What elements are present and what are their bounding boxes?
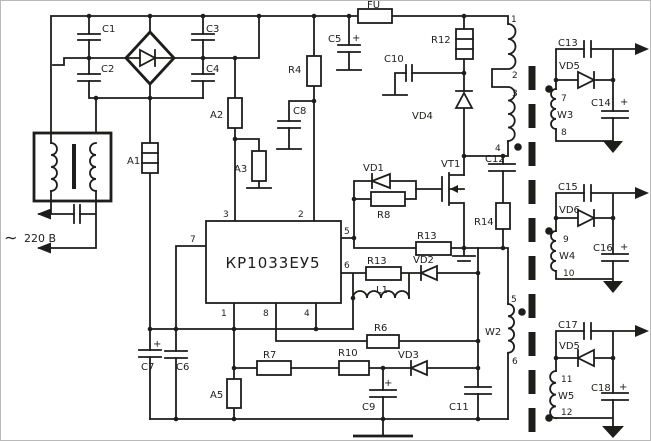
label-r8: R8 (377, 210, 390, 221)
label-c13: C13 (558, 38, 578, 49)
diode-vd2-icon (421, 266, 437, 280)
label-c5-plus: + (352, 33, 360, 44)
label-c18-plus: + (619, 382, 627, 393)
label-vd1: VD1 (363, 163, 384, 174)
w3-winding-icon (551, 89, 556, 129)
w5-winding-icon (550, 371, 556, 418)
label-tr-pin3: 3 (512, 89, 518, 99)
label-mains-voltage: 220 В (24, 232, 56, 245)
fuse-icon (358, 9, 392, 23)
label-c10: C10 (384, 54, 404, 65)
label-tr-pin4: 4 (495, 144, 501, 154)
label-c3: C3 (206, 24, 219, 35)
label-vd5: VD5 (559, 61, 580, 72)
label-c15: C15 (558, 182, 578, 193)
label-vd3: VD3 (398, 350, 419, 361)
w4-winding-icon (551, 231, 556, 271)
label-ic-pin3: 3 (223, 210, 229, 220)
mains-arrow-icon (37, 209, 51, 254)
output-arrow-icons (635, 43, 649, 337)
label-w2: W2 (485, 327, 501, 338)
label-fu: FU (367, 1, 380, 11)
label-tr-pin8: 8 (561, 128, 567, 138)
label-c16-plus: + (620, 242, 628, 253)
diode-vd5-icon (578, 72, 594, 88)
label-c12: C12 (485, 154, 505, 165)
label-c6: C6 (176, 362, 189, 373)
label-c11: C11 (449, 402, 469, 413)
label-tr-pin10: 10 (563, 269, 575, 279)
diode-vd6-icon (578, 210, 594, 226)
x-capacitor-icon (74, 205, 80, 223)
label-ic-pin4: 4 (304, 309, 310, 319)
label-c7-plus: + (153, 339, 161, 350)
label-vt1: VT1 (441, 159, 460, 170)
label-ic-pin7: 7 (190, 235, 196, 245)
label-r12: R12 (431, 35, 451, 46)
label-vd6: VD6 (559, 205, 580, 216)
mosfet-vt1-arrow-icon (450, 185, 458, 193)
label-c7: C7 (141, 362, 154, 373)
label-r10: R10 (338, 348, 358, 359)
label-vd2: VD2 (413, 255, 434, 266)
label-a5: A5 (210, 390, 223, 401)
schematic-sheet: C1 C2 C3 C4 FU C5 + R12 C10 VD4 R4 C8 A1… (0, 0, 651, 441)
label-c9: C9 (362, 402, 375, 413)
label-r6: R6 (374, 323, 387, 334)
label-tr-pin5: 5 (511, 295, 517, 305)
label-vd7: VD5 (559, 341, 580, 352)
label-c18: C18 (591, 383, 611, 394)
diode-vd1-icon (372, 174, 390, 188)
label-ic-pin1: 1 (221, 309, 227, 319)
diode-vd7-icon (578, 350, 594, 366)
label-tr-pin11: 11 (561, 375, 572, 385)
label-vd4: VD4 (412, 111, 433, 122)
diode-vd4-icon (456, 91, 472, 108)
line-filter-choke-icon (34, 133, 111, 201)
w2-winding-icon (508, 304, 514, 353)
label-c5: C5 (328, 34, 341, 45)
label-r13-filter: R13 (367, 256, 387, 267)
label-w4: W4 (559, 251, 575, 262)
label-tr-pin6: 6 (512, 357, 518, 367)
label-c17: C17 (558, 320, 578, 331)
label-ic-pin6: 6 (344, 261, 350, 271)
schematic-canvas: C1 C2 C3 C4 FU C5 + R12 C10 VD4 R4 C8 A1… (1, 1, 651, 441)
label-c9-plus: + (384, 378, 392, 389)
label-r4: R4 (288, 65, 301, 76)
label-ic-part: КР1033ЕУ5 (225, 254, 320, 272)
label-tr-pin12: 12 (561, 408, 572, 418)
fusible-resistor-a1-icon (142, 143, 158, 173)
label-a1: A1 (127, 156, 140, 167)
diode-vd3-icon (411, 361, 427, 375)
primary-winding-icon (492, 24, 516, 141)
bridge-rectifier-icon (126, 32, 174, 84)
label-r13-gate: R13 (417, 231, 437, 242)
label-c14: C14 (591, 98, 611, 109)
label-c1: C1 (102, 24, 115, 35)
label-l1: L1 (376, 285, 388, 296)
label-w5: W5 (558, 391, 574, 402)
label-c8: C8 (293, 106, 306, 117)
label-tr-pin7: 7 (561, 94, 567, 104)
label-a3: A3 (234, 164, 247, 175)
label-r7: R7 (263, 350, 276, 361)
label-c4: C4 (206, 64, 219, 75)
label-tr-pin1: 1 (511, 15, 517, 25)
label-c2: C2 (101, 64, 114, 75)
label-a2: A2 (210, 110, 223, 121)
label-tr-pin9: 9 (563, 235, 569, 245)
label-ic-pin8: 8 (263, 309, 269, 319)
label-tr-pin2: 2 (512, 71, 518, 81)
label-ac-symbol: ∼ (4, 228, 17, 247)
label-r14: R14 (474, 217, 494, 228)
label-ic-pin2: 2 (298, 210, 304, 220)
label-c14-plus: + (620, 97, 628, 108)
label-w3: W3 (557, 110, 573, 121)
fusible-resistor-r12-icon (456, 29, 473, 59)
label-c16: C16 (593, 243, 613, 254)
label-ic-pin5: 5 (344, 227, 350, 237)
